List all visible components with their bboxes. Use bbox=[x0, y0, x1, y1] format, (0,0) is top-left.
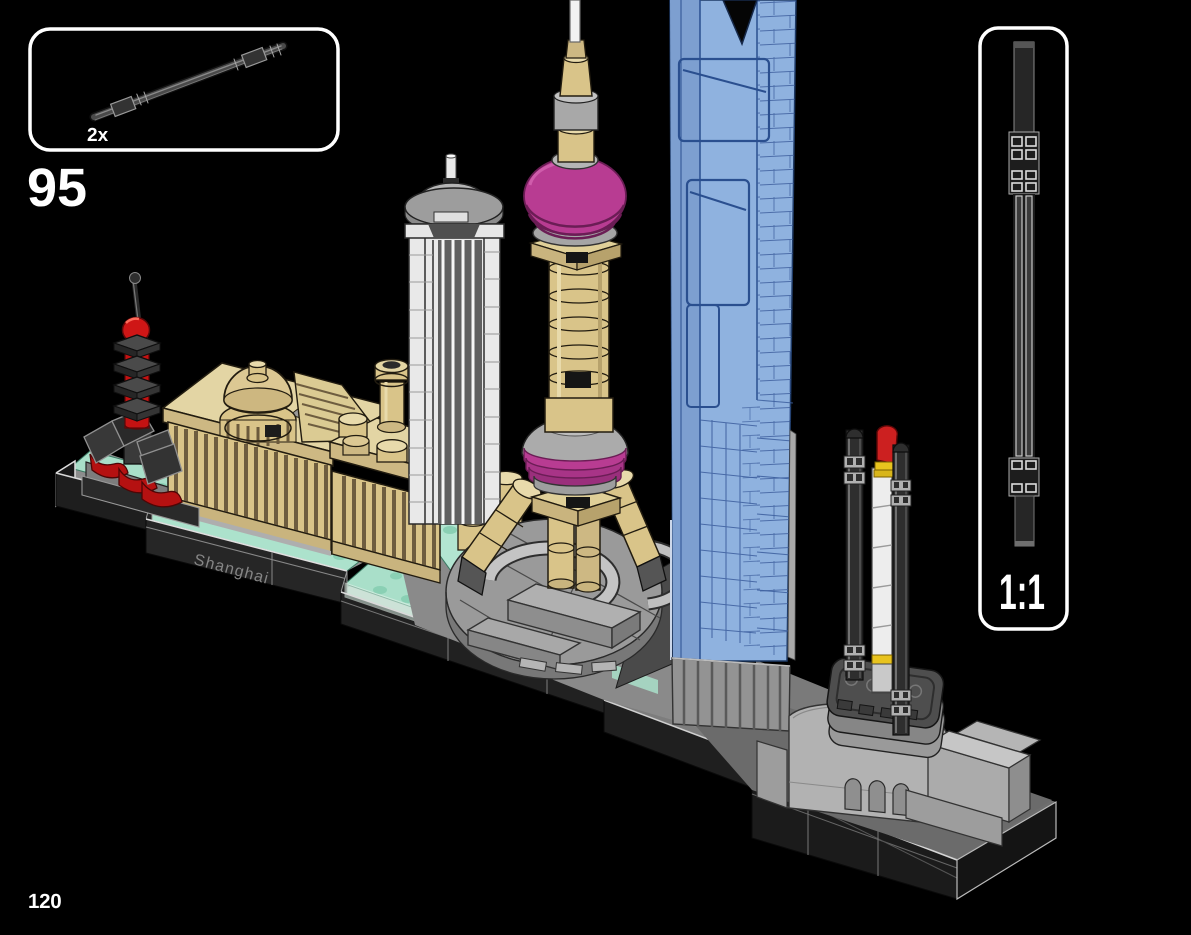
svg-text:95: 95 bbox=[27, 158, 87, 218]
svg-text:1:1: 1:1 bbox=[999, 564, 1045, 620]
svg-text:120: 120 bbox=[28, 890, 61, 913]
svg-text:2x: 2x bbox=[87, 125, 109, 146]
